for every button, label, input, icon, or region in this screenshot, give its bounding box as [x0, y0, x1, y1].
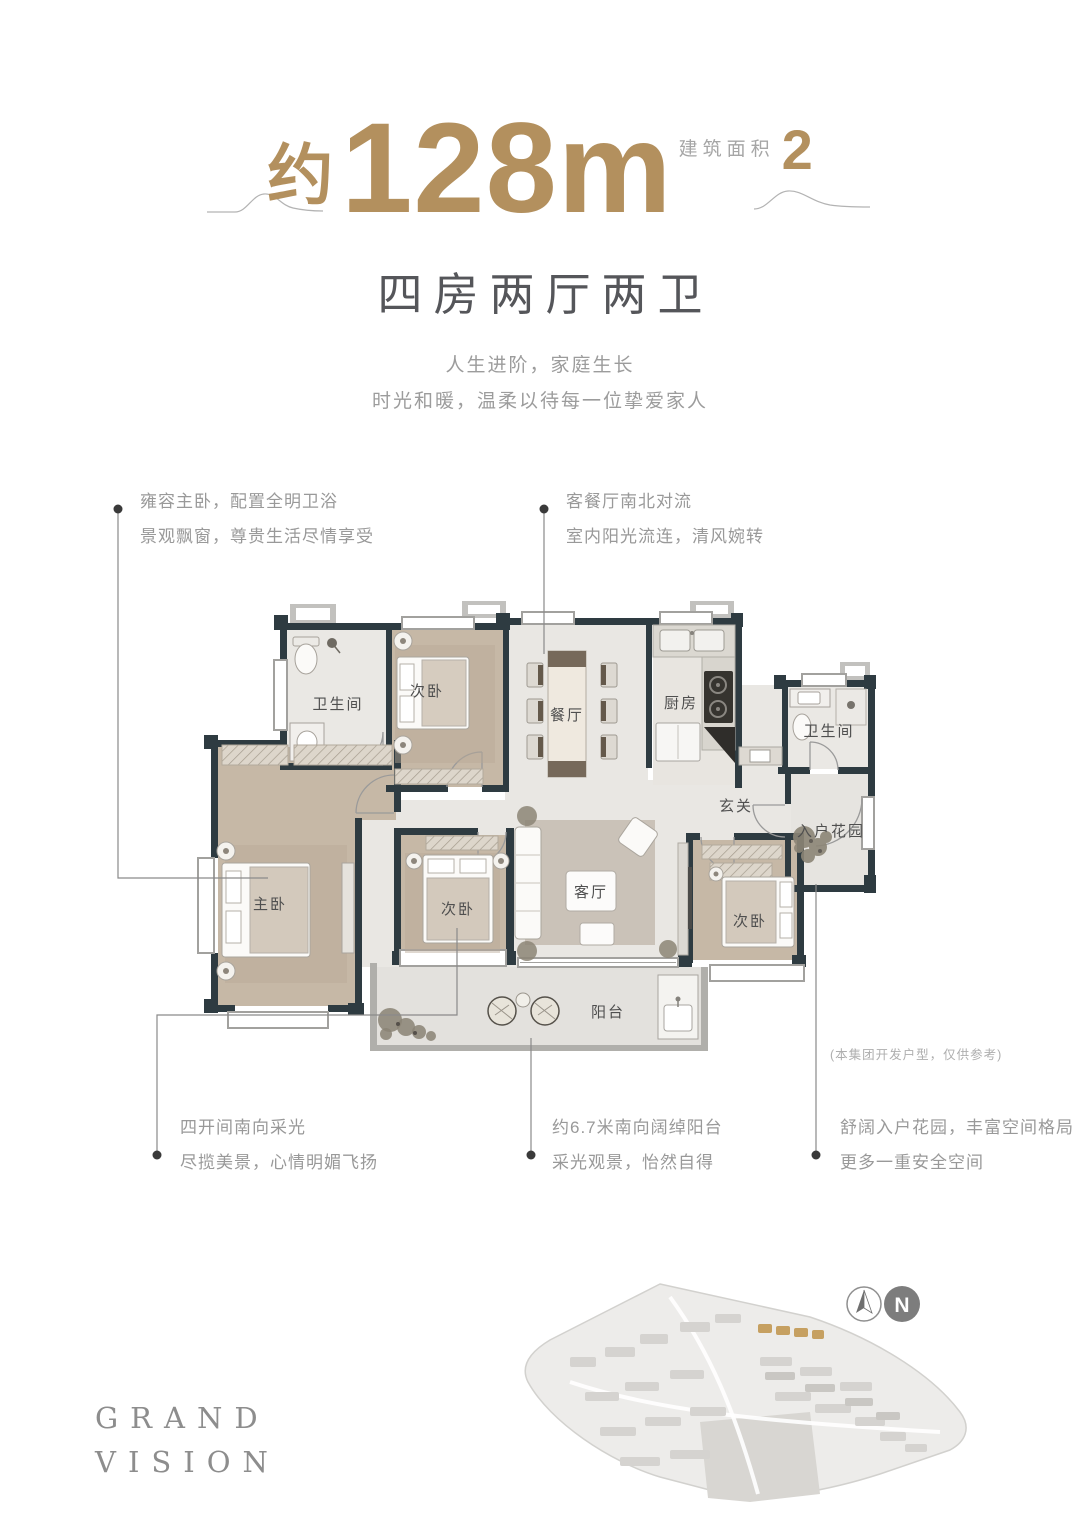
- callout-dot-livingdining: [540, 505, 549, 514]
- compass-icon: N: [847, 1286, 920, 1322]
- poster-page: 约 128 m 建筑面积 2 四房两厅两卫 人生进阶，家庭生长 时光和暖，温柔以…: [0, 0, 1080, 1528]
- brand-logotype: GRAND VISION: [95, 1396, 280, 1484]
- callout-dot-garden: [812, 1151, 821, 1160]
- callout-dot-balcony: [527, 1151, 536, 1160]
- callout-dot-south-rooms: [153, 1151, 162, 1160]
- disclaimer-note: (本集团开发户型，仅供参考): [830, 1044, 1002, 1063]
- brand-line2: VISION: [95, 1440, 280, 1484]
- compass-north-label: N: [894, 1294, 909, 1317]
- callout-dot-master: [114, 505, 123, 514]
- site-map: N: [510, 1262, 990, 1528]
- brand-line1: GRAND: [95, 1396, 280, 1440]
- site-dark-block: [700, 1412, 820, 1502]
